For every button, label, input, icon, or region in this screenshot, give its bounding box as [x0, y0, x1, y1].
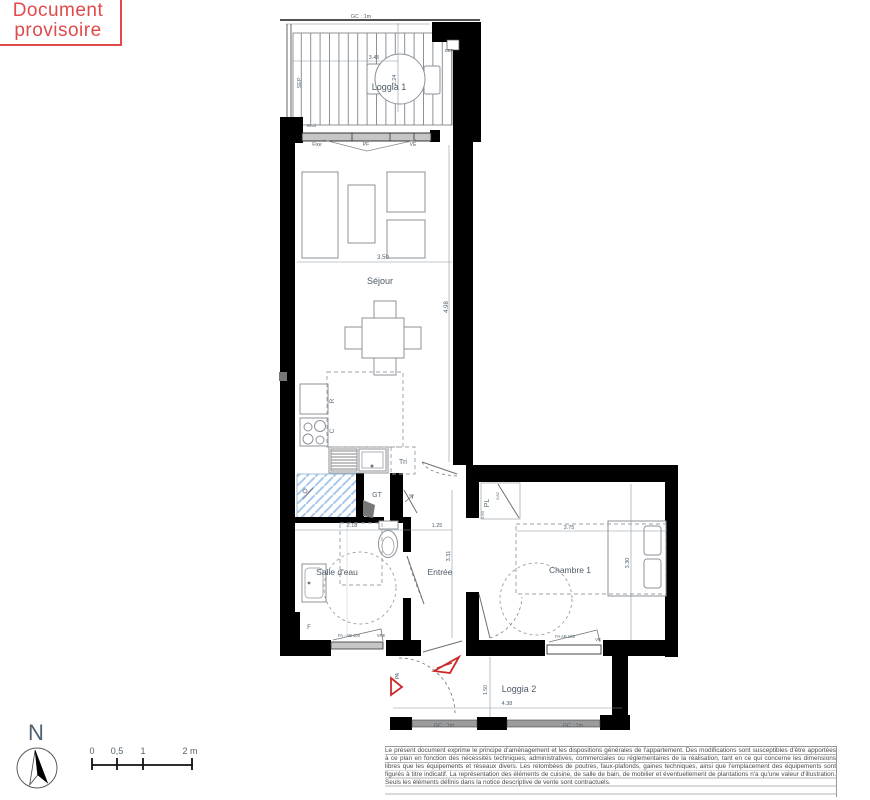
- wall-segment: [403, 598, 411, 640]
- wall-segment: [466, 482, 479, 518]
- entrance-chevron-icon: [391, 678, 402, 695]
- wall-segment: [280, 612, 300, 656]
- gt-shaft: [363, 500, 375, 518]
- salle-deau-window: [331, 642, 383, 649]
- dim-sejour-height: 4.98: [444, 301, 450, 313]
- window-code-fixe: Fixe: [312, 142, 322, 148]
- wall-segment: [665, 482, 678, 657]
- scale-2m: 2 m: [182, 746, 197, 756]
- dim-chambre-width: 3.75: [564, 525, 575, 531]
- wall-segment: [453, 142, 473, 465]
- room-label-chambre1: Chambre 1: [549, 565, 591, 575]
- dim-entree-width: 1.25: [432, 523, 443, 529]
- salle-deau-door-leaf: [407, 556, 424, 604]
- wall-segment: [280, 472, 295, 612]
- floor-plan-page: Document provisoire: [0, 0, 870, 800]
- pa-label: PA: [395, 672, 401, 679]
- wall-segment: [612, 656, 628, 718]
- entrance-markers: [391, 657, 459, 695]
- pillow: [644, 559, 661, 588]
- legal-disclaimer: Le présent document exprime le principe …: [385, 746, 837, 797]
- room-label-loggia1: Loggia 1: [372, 82, 407, 92]
- north-label: N: [28, 720, 44, 745]
- walls: [279, 22, 678, 730]
- pillow: [644, 526, 661, 555]
- room-label-loggia2: Loggia 2: [502, 684, 537, 694]
- wall-segment: [466, 640, 545, 656]
- wall-segment: [403, 522, 411, 552]
- sofa: [302, 172, 338, 258]
- seuil-label: Seuil: [306, 123, 315, 128]
- sep-label: SEP: [297, 77, 303, 88]
- guardrail-label-loggia2-left: GC : 1m: [434, 723, 455, 729]
- dim-loggia2-depth: 1.50: [483, 685, 489, 695]
- wall-segment: [280, 140, 295, 472]
- dim-chambre-height: 3.30: [625, 558, 631, 569]
- wall-segment: [466, 465, 678, 482]
- wall-segment: [477, 717, 507, 730]
- dep-label: DEP: [445, 48, 454, 53]
- dining-chair: [404, 327, 421, 349]
- scale-0: 0: [89, 746, 94, 756]
- gt-label: GT: [372, 492, 382, 499]
- doors: [399, 462, 522, 714]
- vr-label: VR: [595, 637, 601, 642]
- loggia1-chair: [424, 66, 440, 94]
- loggia1-round-table: [375, 54, 425, 104]
- kitchen-zone: [327, 372, 403, 447]
- guardrail-label-loggia2-right: GC : 1m: [563, 723, 584, 729]
- armchair: [387, 172, 425, 212]
- placard-door-leaf: [498, 484, 519, 518]
- wall-segment: [603, 640, 678, 656]
- wall-segment: [466, 592, 479, 640]
- f-mark: F: [307, 625, 311, 631]
- dining-table: [362, 318, 404, 358]
- room-label-sejour: Séjour: [367, 276, 393, 286]
- room-label-entree: Entrée: [427, 567, 452, 577]
- apartment-floor-plan: GC : 1m 3.45 2.24 SEP DEP Loggia 1 Seuil…: [0, 0, 870, 800]
- tri-label: Tri: [399, 459, 407, 466]
- entry-door-leaf: [423, 641, 462, 652]
- compass-needle-icon: [26, 749, 47, 785]
- vre-label: VRE: [377, 633, 386, 638]
- window-code-chambre: FA AB 105: [555, 634, 575, 639]
- radiator-mark: [279, 372, 287, 381]
- armchair: [387, 220, 425, 258]
- dim-sejour-width: 3.50: [377, 255, 389, 261]
- chambre-door-leaf: [479, 594, 490, 638]
- window-code-pf: PF: [363, 142, 369, 148]
- fridge-label: R: [329, 398, 336, 403]
- drainboard: [331, 449, 357, 471]
- dim-placard-depth: 0.60: [480, 510, 485, 519]
- wall-segment: [430, 130, 440, 142]
- room-label-salle-deau: Salle d'eau: [316, 567, 358, 577]
- wall-segment: [600, 715, 630, 730]
- loggia2-guardrail: [507, 720, 600, 727]
- dining-chair: [345, 327, 362, 349]
- scale-1: 1: [140, 746, 145, 756]
- chambre-window: [547, 645, 601, 654]
- wall-segment: [390, 717, 412, 730]
- dining-chair: [374, 301, 396, 318]
- guardrail-label: GC : 1m: [351, 14, 372, 20]
- gt-arrow-icon: [405, 495, 413, 502]
- sejour-window: [302, 133, 431, 141]
- dim-loggia1-width: 3.45: [369, 55, 380, 61]
- placard-label: PL: [484, 499, 491, 508]
- wall-segment: [386, 640, 421, 656]
- window-code-sde: FA - AB 100: [338, 633, 361, 638]
- north-compass: N: [17, 720, 57, 788]
- scale-bar: 0 0,5 1 2 m: [89, 746, 197, 770]
- shower-zone: [297, 474, 358, 520]
- window-code-ve: VE: [410, 142, 417, 148]
- dim-sde-width: 2.18: [347, 523, 358, 529]
- scale-05: 0,5: [111, 746, 124, 756]
- wall-segment: [280, 517, 384, 523]
- coffee-table: [348, 185, 375, 243]
- dim-loggia2-width: 4.38: [502, 701, 513, 707]
- wall-segment: [356, 473, 364, 521]
- dim-entree-height: 3.31: [446, 551, 452, 562]
- wall-segment: [390, 473, 403, 521]
- wall-segment: [300, 640, 331, 656]
- fridge: [300, 384, 328, 414]
- dim-placard-width: 0.82: [495, 491, 500, 500]
- cooktop-label: C: [329, 428, 336, 433]
- turning-circle: [324, 552, 396, 624]
